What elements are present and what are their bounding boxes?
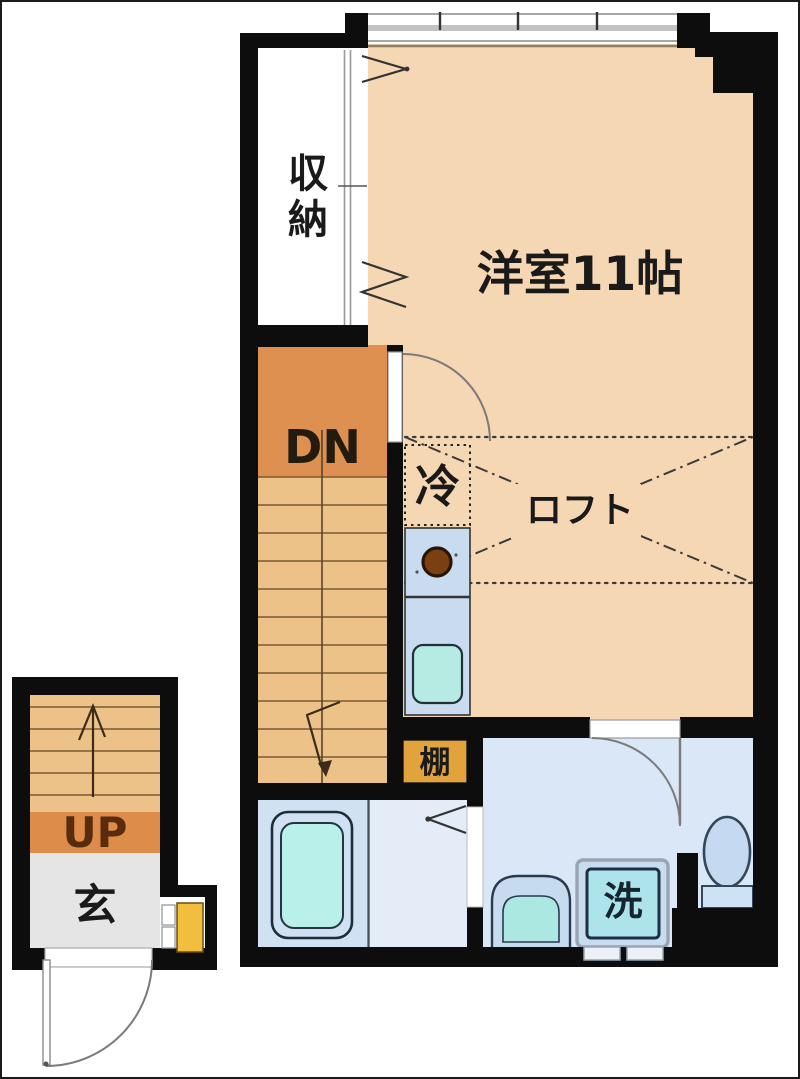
room-door-opening [590,720,680,738]
wall-window-left-post [345,13,368,48]
stove-burner [423,548,451,576]
floorplan-drawing [2,2,798,1077]
front-door-swing-arc [46,960,152,1066]
washroom-floor [370,800,467,947]
entrance-block [12,677,217,1067]
window [368,10,677,46]
shelf-box [403,740,467,783]
wall-washroom-door-lower [467,907,483,950]
floorplan-canvas: 収納 洋室11帖 DN 冷 ロフト 棚 UP 玄 洗 [0,0,800,1079]
wall-top-right-step1 [695,32,778,57]
stair-door-opening [388,352,402,442]
wall-right [753,93,778,967]
wall-kitchen-bottom [395,717,473,740]
nook-panel [162,905,175,925]
front-door-opening [45,948,152,967]
washing-machine [587,869,659,938]
burner-knob-dot [454,553,457,556]
shoe-cabinet [177,903,203,952]
wall-hallway-top-left [473,717,590,738]
washroom-door-opening [467,807,483,907]
burner-knob-dot [415,570,418,573]
bathtub [281,823,343,928]
wall-washroom-door-upper [467,737,483,807]
toilet-bowl [704,817,750,887]
folding-door-pivot-dot [425,816,430,821]
front-door-leaf [43,960,50,1065]
closet-floor [258,44,368,325]
kitchen-sink [413,645,462,703]
wall-bath-top [240,783,473,800]
wall-closet-bottom [240,325,368,347]
kitchen-unit [405,528,470,715]
entrance-genkan-floor [30,853,160,948]
wall-bottom [240,947,778,967]
wall-toilet-stub [677,853,698,910]
closet-folding-dot [405,67,410,72]
wall-hallway-top-right [680,717,753,738]
loft-label-backplate [515,484,641,538]
entrance-stair-landing [30,812,160,853]
wall-left [240,33,258,967]
main-stairs [258,345,387,783]
hand-basin-bowl [503,896,559,942]
front-door-hinge-dot [44,1062,49,1067]
toilet-tank [702,886,753,908]
nook-panel [162,927,175,948]
wall-top-right-step2 [713,57,778,93]
